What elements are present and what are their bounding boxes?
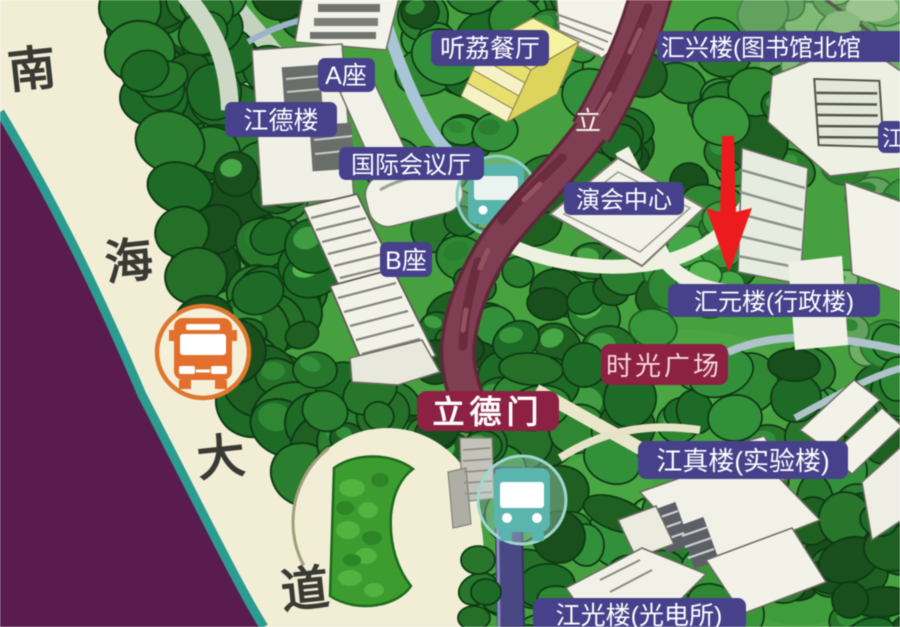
svg-text:立德门: 立德门 bbox=[432, 394, 543, 430]
svg-text:A座: A座 bbox=[325, 62, 367, 90]
svg-text:海: 海 bbox=[102, 234, 155, 292]
svg-text:道: 道 bbox=[278, 562, 331, 620]
svg-text:汇兴楼(图书馆北馆: 汇兴楼(图书馆北馆 bbox=[661, 35, 861, 62]
svg-text:大: 大 bbox=[194, 430, 247, 488]
svg-text:汇元楼(行政楼): 汇元楼(行政楼) bbox=[694, 289, 854, 316]
svg-text:江德楼: 江德楼 bbox=[243, 107, 318, 135]
svg-text:B座: B座 bbox=[385, 247, 427, 275]
svg-text:江真楼(实验楼): 江真楼(实验楼) bbox=[656, 446, 829, 476]
svg-text:南: 南 bbox=[5, 42, 58, 100]
svg-text:国际会议厅: 国际会议厅 bbox=[351, 152, 471, 179]
svg-text:演会中心: 演会中心 bbox=[576, 187, 672, 214]
svg-text:江光楼(光电所): 江光楼(光电所) bbox=[556, 602, 723, 627]
svg-text:江: 江 bbox=[882, 126, 900, 151]
svg-text:时光广场: 时光广场 bbox=[606, 351, 722, 381]
svg-text:听荔餐厅: 听荔餐厅 bbox=[440, 35, 540, 63]
svg-text:立: 立 bbox=[575, 106, 601, 136]
